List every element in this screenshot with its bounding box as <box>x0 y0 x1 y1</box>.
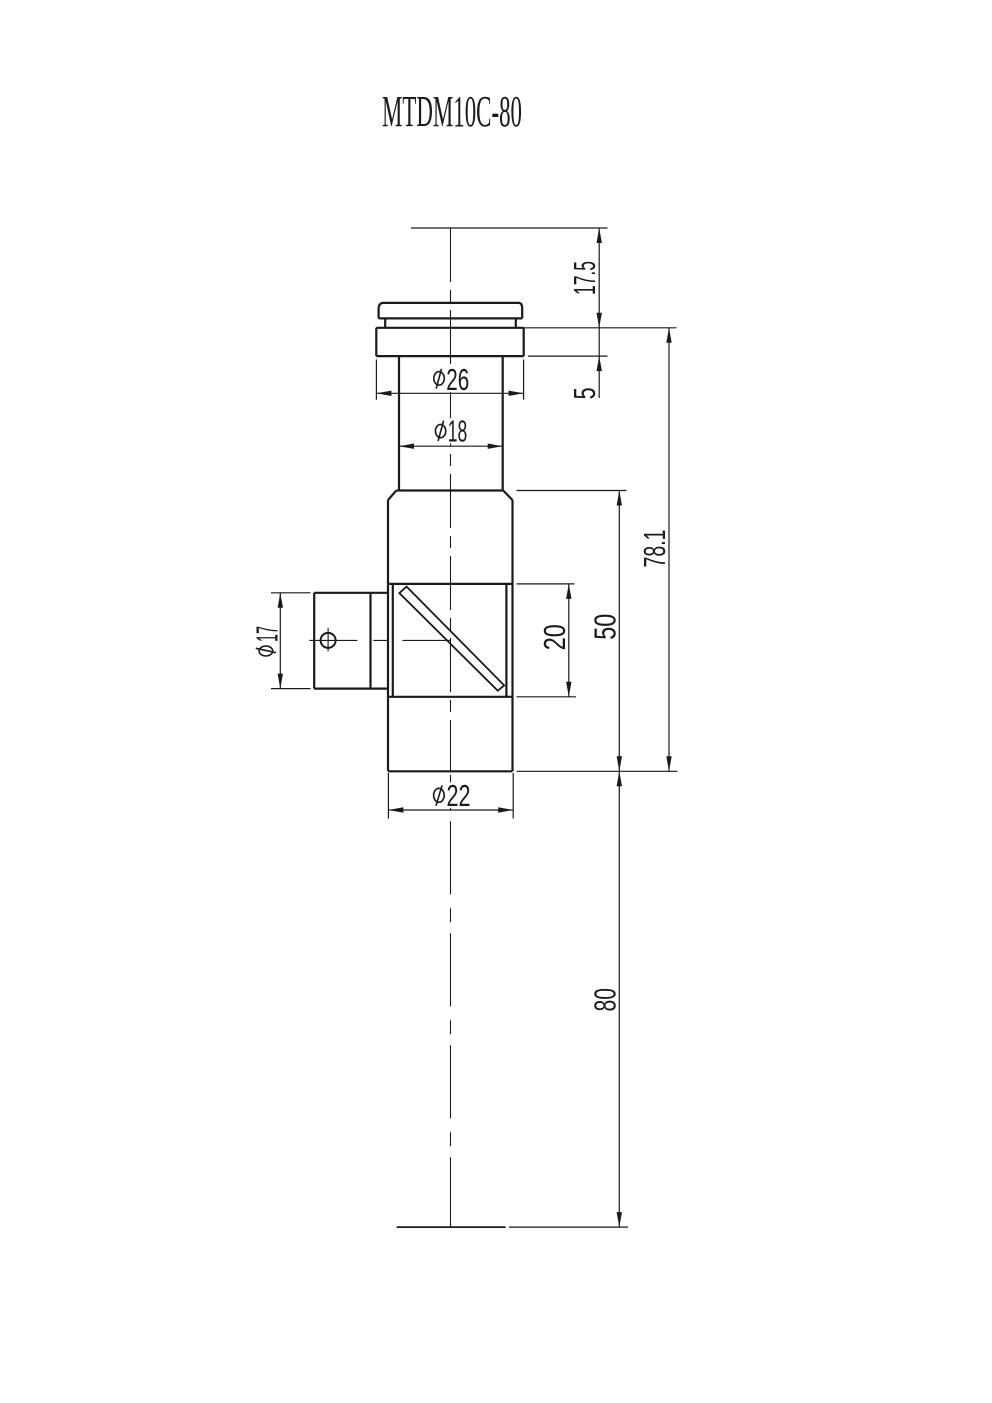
svg-text:18: 18 <box>448 414 468 448</box>
svg-text:17: 17 <box>251 626 285 642</box>
svg-text:80: 80 <box>588 988 622 1012</box>
svg-text:22: 22 <box>447 779 471 813</box>
svg-text:50: 50 <box>588 614 622 640</box>
svg-text:5: 5 <box>568 387 602 399</box>
svg-text:20: 20 <box>538 624 572 650</box>
svg-text:17.5: 17.5 <box>568 261 602 295</box>
svg-text:78.1: 78.1 <box>638 530 672 568</box>
svg-text:26: 26 <box>446 363 469 397</box>
svg-text:MTDM10C-80: MTDM10C-80 <box>382 87 522 136</box>
